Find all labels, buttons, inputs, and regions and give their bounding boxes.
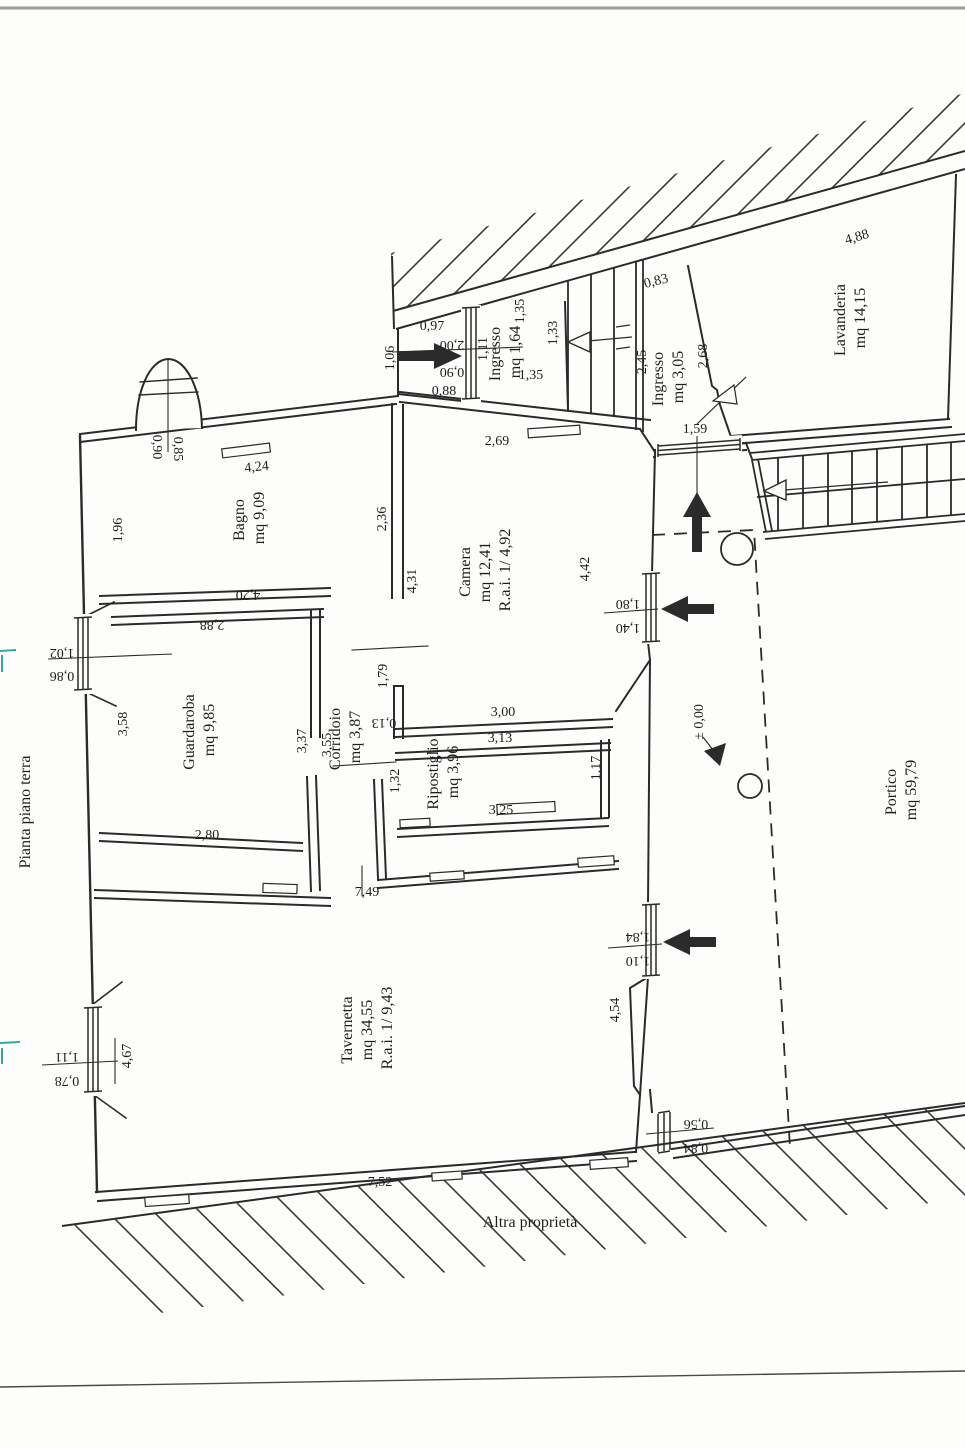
dim: 1,35 (513, 299, 528, 324)
level-value: ± 0,00 (692, 704, 707, 740)
dim: 1,17 (589, 756, 604, 781)
dim: 4,88 (843, 227, 871, 248)
dim: 1,96 (111, 518, 126, 543)
dim: 1,35 (519, 368, 544, 383)
room-label-lavanderia: Lavanderia mq 14,15 (832, 280, 869, 356)
dim: 0,90 (149, 435, 164, 460)
dim: 4,24 (244, 459, 270, 476)
dim: 2,88 (200, 617, 225, 632)
floor-plan-page: Pianta piano terra Altra proprietà Bagno… (0, 0, 965, 1448)
dim: 2,36 (375, 507, 390, 532)
dim: 2,00 (440, 337, 465, 352)
entry-staircase (568, 260, 643, 432)
portico-door-159-window (656, 435, 742, 461)
dim: 0,97 (420, 319, 445, 334)
room-label-ingresso-main: Ingresso mq 3,05 (650, 348, 687, 406)
dim: 1,11 (55, 1049, 79, 1064)
level-triangle-icon (704, 743, 726, 766)
tavernetta-left-window (83, 1004, 104, 1096)
room-label-camera: Camera mq 12,41 R.a.i. 1/ 4,92 (457, 529, 514, 612)
dim: 3,58 (116, 712, 131, 737)
dim: 2,80 (195, 828, 220, 843)
dim: 0,78 (55, 1073, 80, 1088)
dim: 0,90 (440, 364, 465, 379)
scan-bottom-line (0, 1371, 965, 1387)
dim: 7,52 (368, 1175, 393, 1190)
dim: 2,45 (635, 350, 650, 375)
dim: 0,85 (170, 437, 185, 462)
column-icon (738, 774, 762, 798)
stair-direction-arrow-icon (568, 332, 590, 352)
dim: 0,88 (432, 384, 457, 399)
dim: 1,79 (376, 664, 391, 689)
page-title: Pianta piano terra (17, 756, 34, 869)
dim: 3,55 (320, 733, 335, 758)
dim: 4,67 (120, 1044, 135, 1069)
dim: 3,25 (489, 803, 514, 818)
dim: 0,86 (50, 668, 75, 683)
dim: 0,83 (642, 271, 669, 291)
room-label-bagno: Bagno mq 9,09 (231, 492, 268, 544)
dim: 2,69 (485, 434, 510, 449)
level-marker (703, 737, 726, 766)
portico-staircase (750, 434, 965, 539)
dim: 4,31 (405, 569, 420, 594)
neighbour-hatch-top (391, 93, 965, 329)
dim: 1,11 (476, 337, 491, 361)
dim: 2,68 (696, 344, 711, 369)
room-label-ripostiglio: Ripostiglio mq 3,96 (425, 734, 462, 809)
dim: 3,37 (295, 729, 310, 754)
portico-boundary-dashed (652, 530, 790, 1148)
camera-window (641, 571, 661, 644)
lavanderia-door (697, 377, 746, 424)
door-swing-icon (713, 385, 737, 404)
dim: 4,20 (236, 587, 261, 602)
other-property-label: Altra proprietà (483, 1214, 578, 1231)
dim: 3,13 (488, 731, 513, 746)
dim: 1,40 (616, 620, 641, 635)
dim: 1,59 (683, 422, 708, 437)
dim: 0,56 (684, 1116, 709, 1131)
dim: 1,06 (383, 346, 398, 371)
tavernetta-window-arrow-icon (663, 929, 716, 955)
room-label-portico: Portico mq 59,79 (883, 760, 920, 820)
dim: 1,10 (626, 953, 651, 968)
dim: 0,84 (684, 1140, 709, 1155)
floor-plan-drawing: Pianta piano terra Altra proprietà Bagno… (0, 0, 965, 1448)
wall-niches (145, 425, 629, 1206)
column-icon (721, 533, 753, 565)
dim: 1,32 (388, 769, 403, 794)
dim: 1,84 (626, 929, 651, 944)
dim: 1,33 (546, 321, 561, 346)
dim: 1,80 (616, 596, 641, 611)
dim: 7,49 (355, 885, 380, 900)
dim: 4,54 (608, 998, 623, 1023)
dim: 0,13 (372, 715, 397, 730)
camera-window-arrow-icon (661, 596, 714, 622)
room-label-tavernetta: Tavernetta mq 34,55 R.a.i. 1/ 9,43 (339, 987, 396, 1070)
dim: 1,02 (50, 645, 75, 660)
dim: 4,42 (578, 557, 593, 582)
dim: 3,00 (491, 705, 516, 720)
room-label-guardaroba: Guardaroba mq 9,85 (181, 690, 218, 770)
